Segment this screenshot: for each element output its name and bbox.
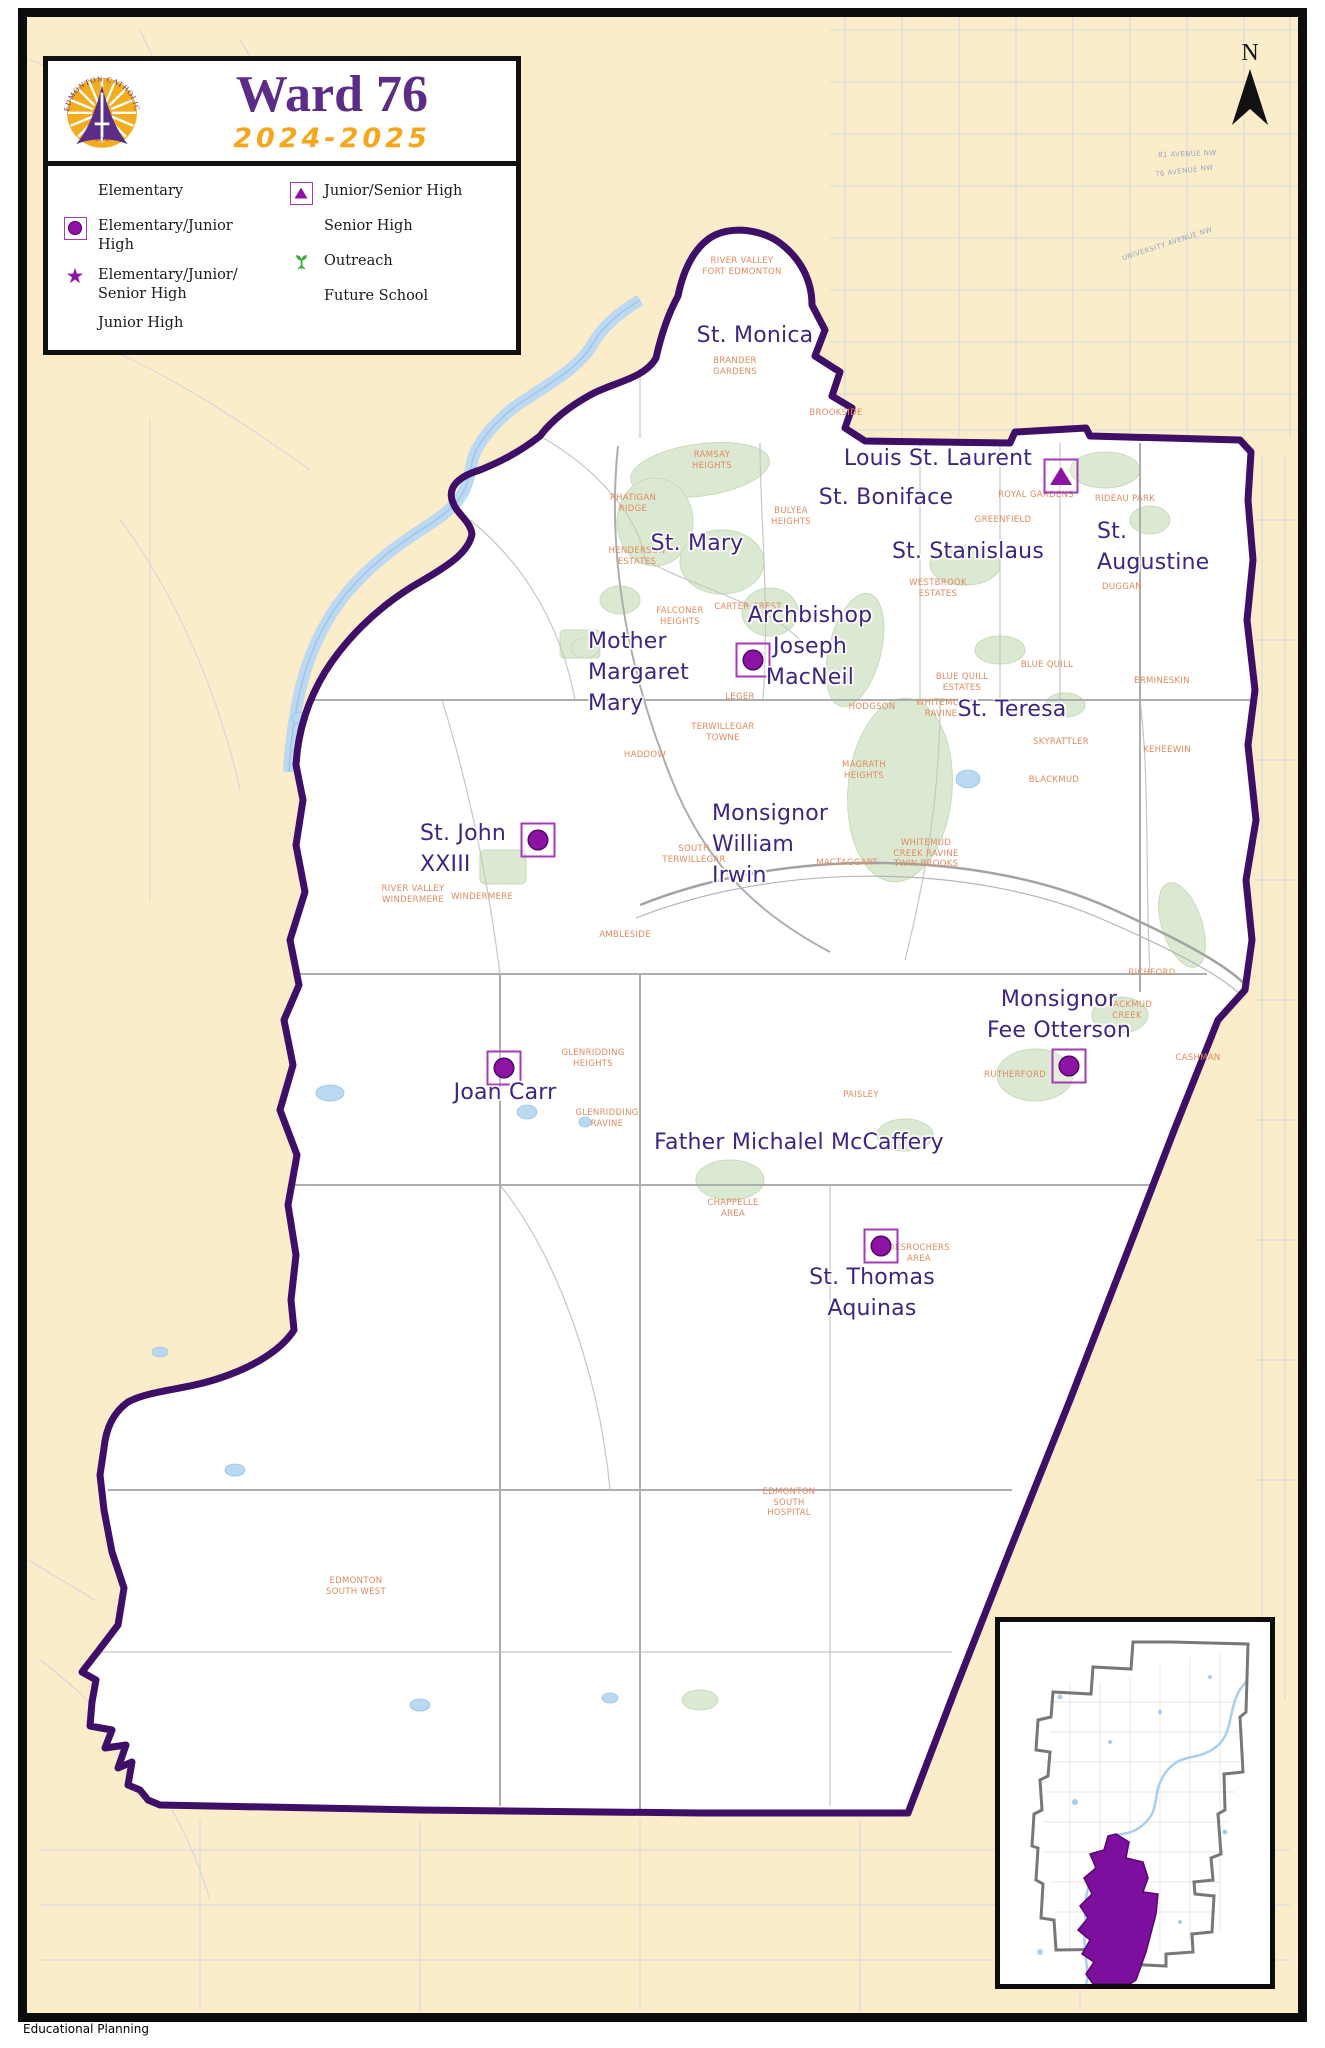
inset-map [995, 1617, 1275, 1989]
ward-title: Ward 76 [148, 68, 516, 121]
neighborhood-label: BLUE QUILL ESTATES [936, 672, 988, 693]
school-label: St. Boniface [819, 482, 953, 513]
neighborhood-label: RHATIGAN RIDGE [610, 493, 656, 514]
ecs-logo: EDMONTON CATHOLIC SCHOOLS [56, 65, 148, 157]
legend-item-outreach: Outreach [288, 250, 510, 276]
north-arrow-icon [1222, 67, 1278, 131]
legend-item-elem-jr: Elementary/Junior High [62, 215, 284, 255]
school-label: Louis St. Laurent [844, 443, 1032, 474]
neighborhood-label: DUGGAN [1102, 582, 1142, 593]
neighborhood-label: WESTBROOK ESTATES [909, 578, 967, 599]
neighborhood-label: GREENFIELD [975, 515, 1032, 526]
neighborhood-label: RIVER VALLEY FORT EDMONTON [702, 256, 781, 277]
neighborhood-label: SKYRATTLER [1033, 737, 1089, 748]
legend-label: Junior High [98, 312, 183, 333]
north-arrow: N [1222, 40, 1278, 136]
school-label: Monsignor Fee Otterson [987, 984, 1131, 1046]
legend-item-junior: Junior High [62, 312, 284, 338]
neighborhood-label: CHAPPELLE AREA [707, 1198, 758, 1219]
map-page: RIVER VALLEY FORT EDMONTONBRANDER GARDEN… [0, 0, 1325, 2048]
legend-item-future: Future School [288, 285, 510, 311]
neighborhood-label: TERWILLEGAR TOWNE [691, 722, 755, 743]
neighborhood-label: GLENRIDDING HEIGHTS [561, 1048, 624, 1069]
road-label: 76 AVENUE NW [1155, 163, 1214, 178]
legend-item-elementary: Elementary [62, 180, 284, 206]
neighborhood-label: WHITEMUD CREEK RAVINE TWIN BROOKS [893, 838, 958, 870]
neighborhood-label: RICHFORD [1128, 968, 1175, 979]
school-label: Joan Carr [454, 1077, 557, 1108]
elem-jr-icon [62, 215, 88, 241]
title-area: EDMONTON CATHOLIC SCHOOLS Ward 76 2024-2… [48, 61, 516, 166]
north-label: N [1222, 40, 1278, 67]
road-label: 81 AVENUE NW [1158, 149, 1217, 159]
school-label: Archbishop Joseph MacNeil [748, 600, 873, 694]
neighborhood-label: CASHMAN [1175, 1053, 1220, 1064]
school-marker-elem-jr [864, 1229, 899, 1264]
neighborhood-label: EDMONTON SOUTH WEST [326, 1576, 386, 1597]
title-legend-box: EDMONTON CATHOLIC SCHOOLS Ward 76 2024-2… [43, 56, 521, 355]
neighborhood-label: RAMSAY HEIGHTS [692, 450, 732, 471]
school-label: St. Teresa [958, 694, 1067, 725]
neighborhood-label: MAGRATH HEIGHTS [842, 760, 886, 781]
neighborhood-label: RIDEAU PARK [1095, 494, 1155, 505]
legend-label: Outreach [324, 250, 393, 271]
legend-label: Junior/Senior High [324, 180, 462, 201]
neighborhood-label: BLUE QUILL [1021, 660, 1073, 671]
legend-label: Elementary [98, 180, 183, 201]
school-label: St. Augustine [1097, 516, 1209, 578]
road-label: UNIVERSITY AVENUE NW [1121, 226, 1213, 263]
neighborhood-label: KEHEEWIN [1143, 745, 1191, 756]
neighborhood-label: RUTHERFORD [984, 1070, 1046, 1081]
title-texts: Ward 76 2024-2025 [148, 68, 516, 154]
legend-item-jr-sr: Junior/Senior High [288, 180, 510, 206]
junior-icon [62, 312, 88, 338]
school-label: St. Monica [697, 320, 814, 351]
legend: ElementaryElementary/Junior High★Element… [48, 166, 516, 350]
outreach-icon [288, 250, 314, 276]
school-marker-elem-jr [521, 823, 556, 858]
legend-item-elem-jr-sr: ★Elementary/Junior/ Senior High [62, 264, 284, 304]
school-label: St. Stanislaus [892, 536, 1044, 567]
legend-column-1: ElementaryElementary/Junior High★Element… [62, 180, 284, 338]
neighborhood-label: WINDERMERE [451, 892, 513, 903]
jr-sr-icon [288, 180, 314, 206]
future-icon [288, 285, 314, 311]
school-marker-elem-jr [1052, 1049, 1087, 1084]
neighborhood-label: HODGSON [849, 702, 896, 713]
school-label: Monsignor William Irwin [712, 798, 828, 892]
school-label: Father Michalel McCaffery [654, 1127, 944, 1158]
neighborhood-label: RIVER VALLEY WINDERMERE [382, 884, 445, 905]
school-label: Mother Margaret Mary [588, 626, 689, 720]
school-marker-jr-sr [1044, 459, 1079, 494]
legend-column-2: Junior/Senior HighSenior HighOutreachFut… [288, 180, 510, 338]
neighborhood-label: BULYEA HEIGHTS [771, 506, 811, 527]
senior-icon [288, 215, 314, 241]
neighborhood-label: ERMINESKIN [1134, 676, 1190, 687]
elem-jr-sr-icon: ★ [62, 264, 88, 290]
legend-item-senior: Senior High [288, 215, 510, 241]
inset-canvas [1000, 1622, 1270, 1984]
legend-label: Senior High [324, 215, 413, 236]
school-label: St. John XXIII [420, 818, 506, 880]
neighborhood-label: EDMONTON SOUTH HOSPITAL [763, 1487, 816, 1519]
footer-credit: Educational Planning [23, 2022, 149, 2036]
elementary-icon [62, 180, 88, 206]
neighborhood-label: BROOKSIDE [809, 408, 862, 419]
ward-year: 2024-2025 [148, 123, 516, 154]
legend-label: Elementary/Junior/ Senior High [98, 264, 238, 304]
legend-label: Elementary/Junior High [98, 215, 233, 255]
school-label: St. Mary [651, 528, 744, 559]
neighborhood-label: FALCONER HEIGHTS [656, 606, 703, 627]
legend-label: Future School [324, 285, 428, 306]
neighborhood-label: PAISLEY [843, 1090, 879, 1101]
school-label: St. Thomas Aquinas [809, 1262, 935, 1324]
neighborhood-label: GLENRIDDING RAVINE [575, 1108, 638, 1129]
neighborhood-label: HADDOW [624, 750, 666, 761]
neighborhood-label: BRANDER GARDENS [713, 356, 757, 377]
neighborhood-label: BLACKMUD [1029, 775, 1079, 786]
neighborhood-label: AMBLESIDE [599, 930, 651, 941]
